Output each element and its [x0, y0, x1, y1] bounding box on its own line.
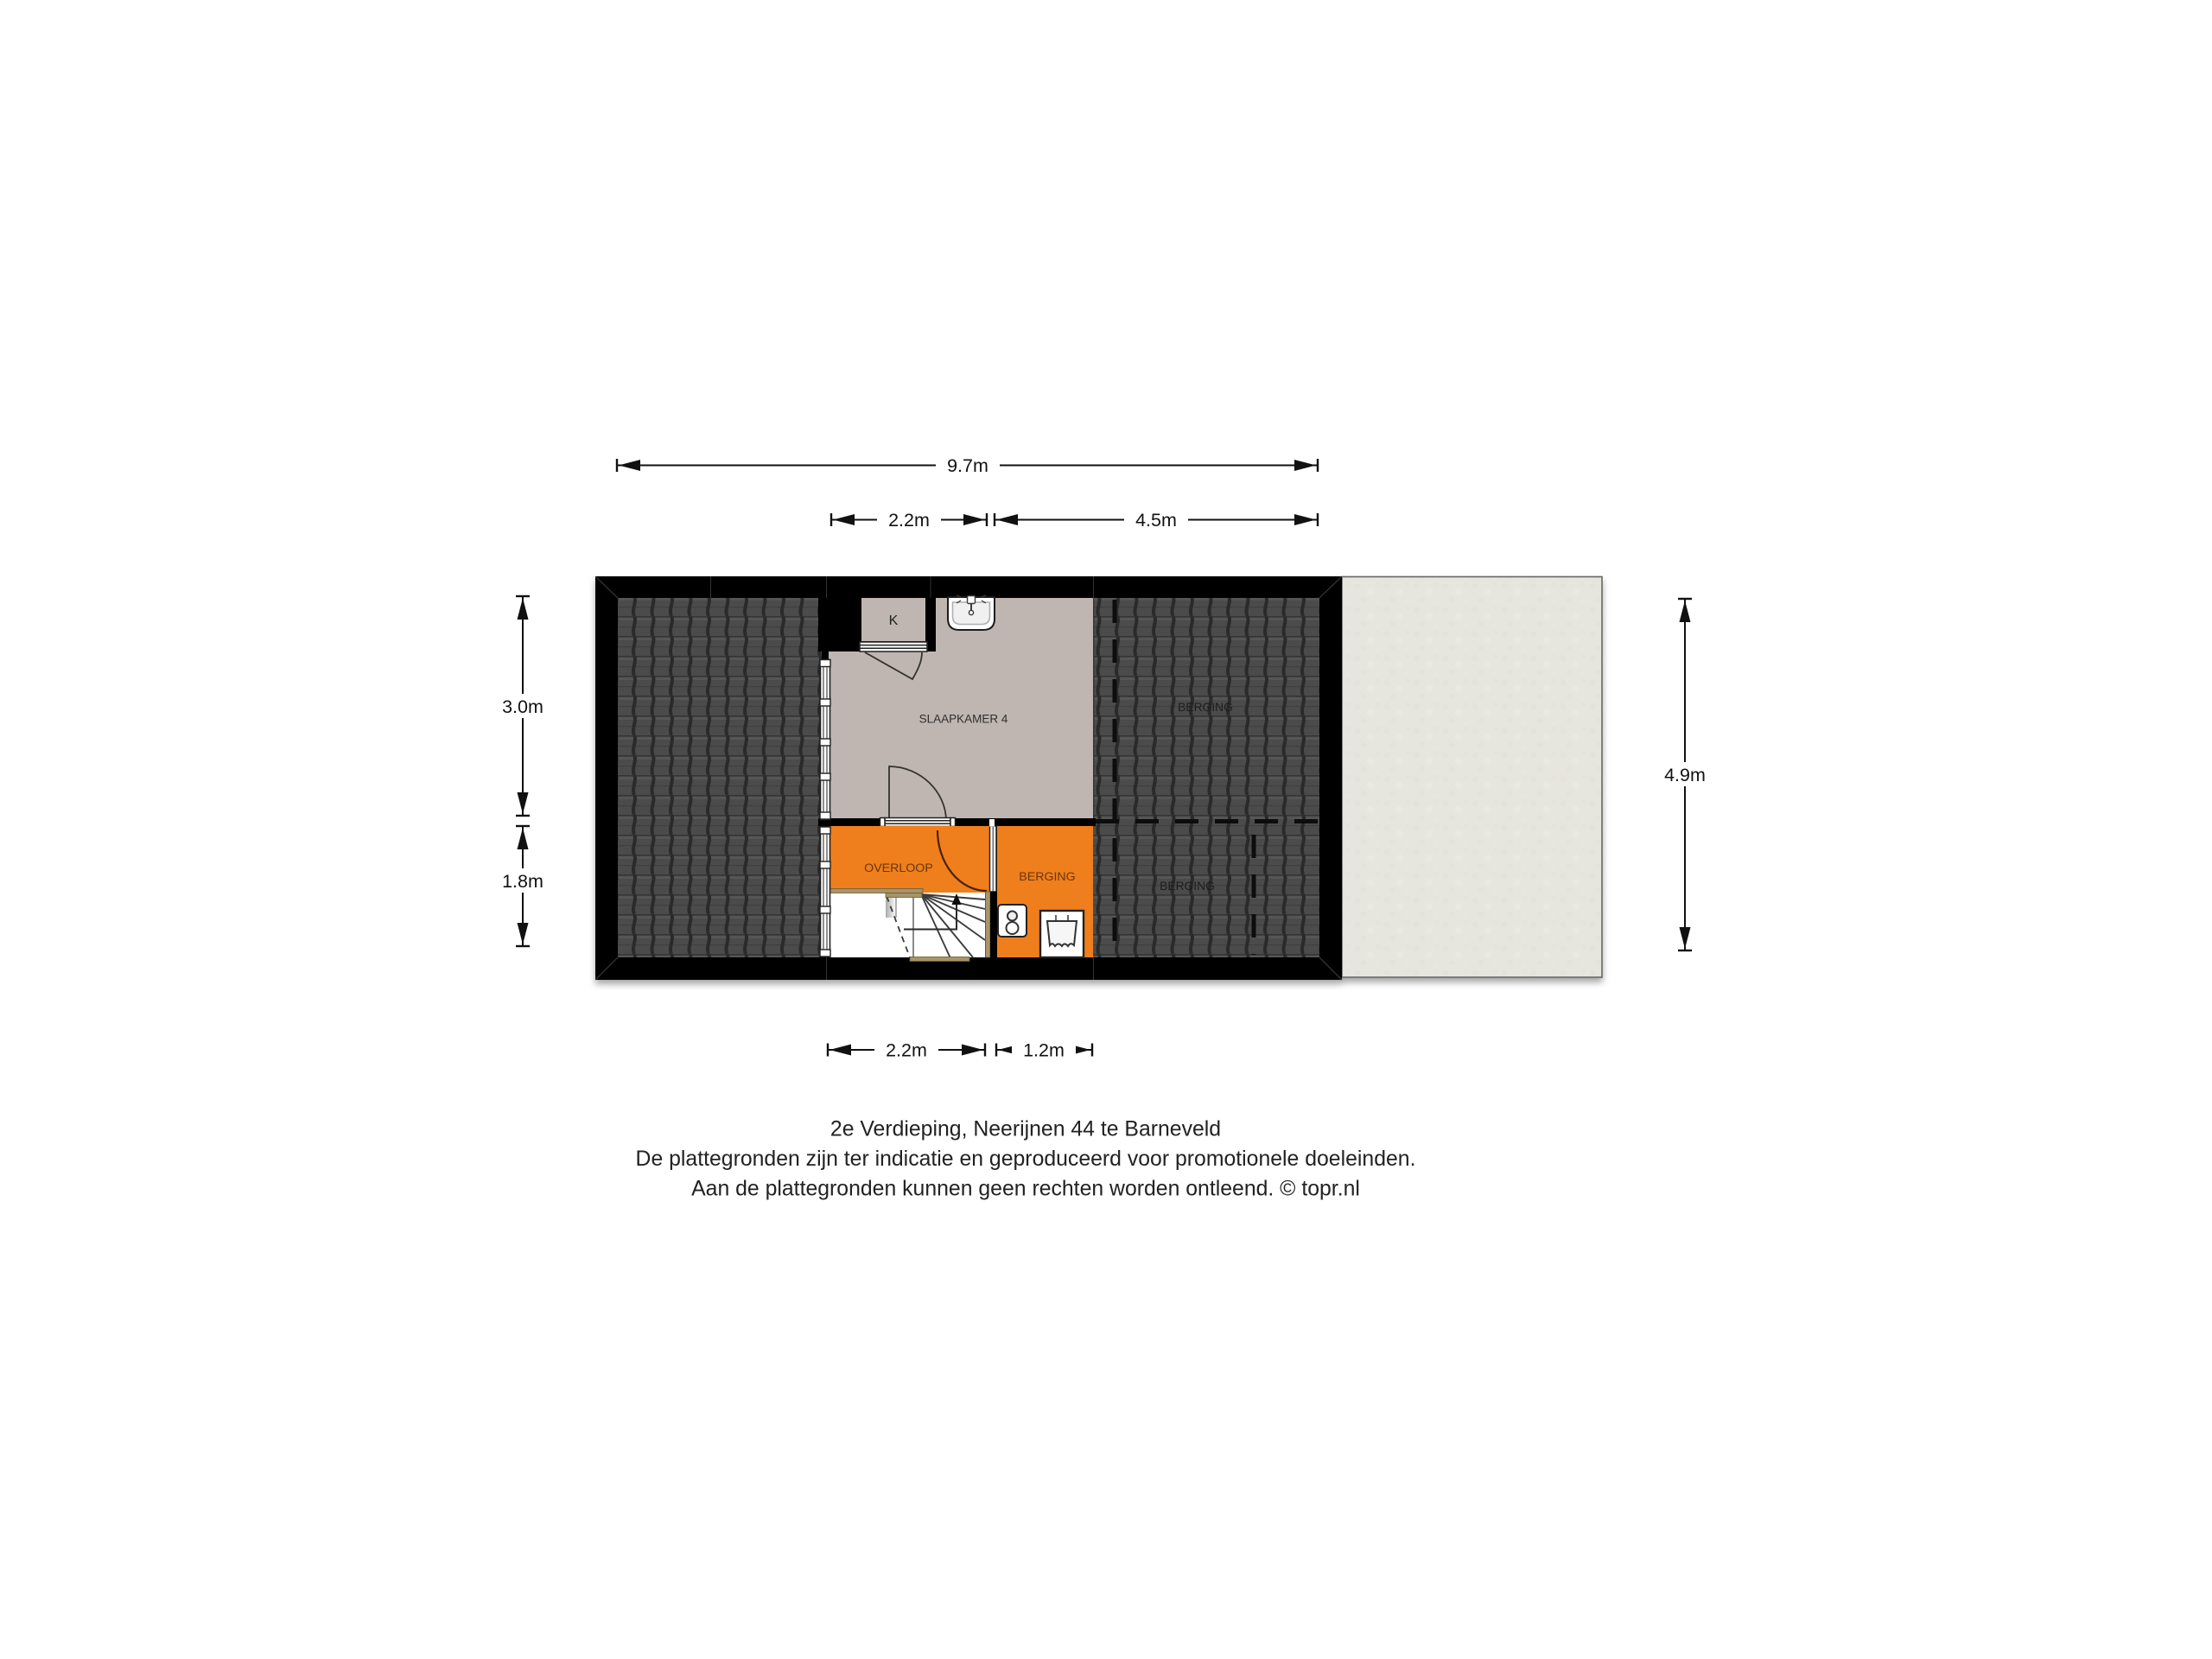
- svg-text:BERGING: BERGING: [1160, 880, 1215, 893]
- svg-text:1.2m: 1.2m: [1023, 1040, 1065, 1061]
- svg-text:9.7m: 9.7m: [947, 455, 988, 476]
- svg-text:Aan de plattegronden kunnen ge: Aan de plattegronden kunnen geen rechten…: [691, 1178, 1360, 1201]
- svg-text:SLAAPKAMER 4: SLAAPKAMER 4: [919, 713, 1008, 726]
- svg-text:BERGING: BERGING: [1019, 870, 1075, 884]
- svg-text:4.9m: 4.9m: [1664, 765, 1706, 785]
- svg-text:2.2m: 2.2m: [886, 1040, 927, 1061]
- svg-text:4.5m: 4.5m: [1135, 510, 1177, 531]
- svg-text:2e Verdieping, Neerijnen 44 te: 2e Verdieping, Neerijnen 44 te Barneveld: [830, 1118, 1221, 1141]
- svg-text:BERGING: BERGING: [1178, 701, 1233, 714]
- svg-text:OVERLOOP: OVERLOOP: [864, 861, 933, 875]
- svg-text:K: K: [889, 613, 899, 628]
- svg-text:De plattegronden zijn ter indi: De plattegronden zijn ter indicatie en g…: [636, 1147, 1416, 1171]
- svg-text:3.0m: 3.0m: [502, 696, 543, 717]
- svg-text:2.2m: 2.2m: [888, 510, 930, 531]
- svg-text:1.8m: 1.8m: [502, 871, 543, 892]
